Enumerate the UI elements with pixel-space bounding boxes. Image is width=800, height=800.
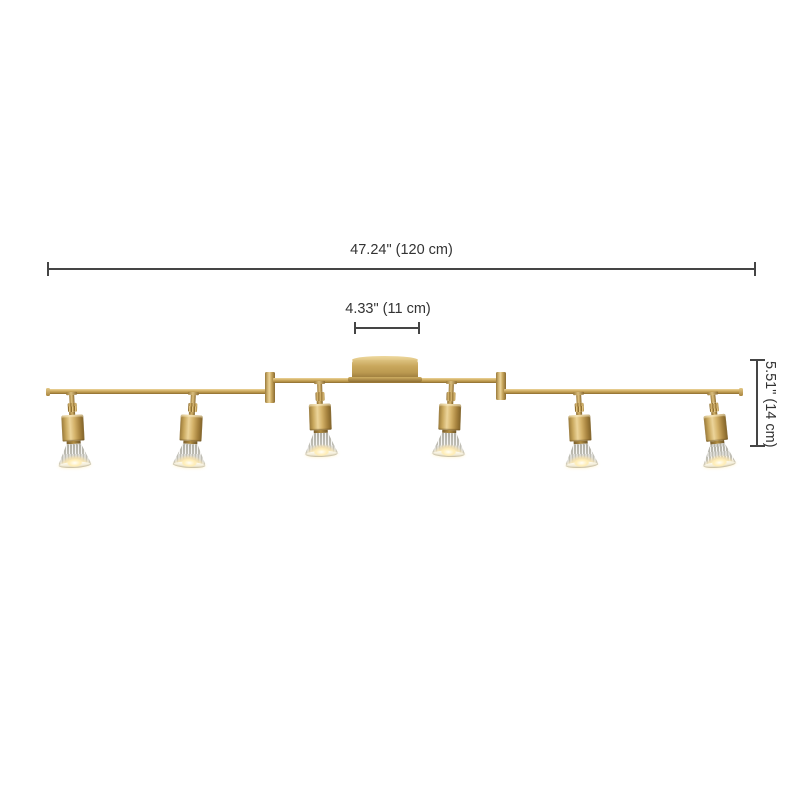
lamp-head-1	[53, 391, 93, 469]
lamp-glass-shade	[564, 443, 599, 469]
ceiling-canopy-flange	[348, 377, 422, 382]
overall-width-dimension-line	[48, 268, 755, 270]
fixture-height-dimension-label: 5.51" (14 cm)	[762, 361, 778, 448]
lamp-stem	[448, 384, 453, 392]
lamp-head-3	[301, 380, 340, 457]
lamp-cylinder-body	[568, 414, 591, 441]
lamp-stem	[190, 395, 195, 403]
canopy-width-dimension-label: 4.33" (11 cm)	[326, 301, 450, 317]
lamp-glass-shade	[172, 443, 207, 469]
fixture-height-dimension-line	[756, 360, 758, 446]
overall-width-left-tick	[47, 262, 49, 276]
lamp-stem	[317, 384, 322, 392]
overall-width-right-tick	[754, 262, 756, 276]
lamp-bulb-glow	[441, 448, 456, 457]
overall-width-dimension-label: 47.24" (120 cm)	[48, 242, 755, 258]
canopy-width-dimension-line	[355, 327, 419, 329]
lamp-swivel-joint	[446, 392, 455, 401]
lamp-cylinder-body	[179, 414, 202, 441]
track-connector-left	[265, 372, 275, 403]
product-dimension-diagram: 47.24" (120 cm) 4.33" (11 cm) 5.51" (14 …	[0, 0, 800, 800]
lamp-glass-shade	[701, 442, 737, 469]
lamp-head-2	[171, 391, 211, 469]
lamp-glass-shade	[57, 443, 92, 469]
lamp-glass-shade	[431, 432, 466, 457]
lamp-cylinder-body	[309, 404, 332, 431]
lamp-cylinder-body	[438, 404, 461, 431]
lamp-cylinder-body	[703, 414, 728, 442]
lamp-head-5	[560, 391, 600, 469]
canopy-width-left-tick	[354, 322, 356, 334]
ceiling-canopy-body	[352, 360, 418, 378]
lamp-glass-shade	[304, 432, 339, 457]
track-rail-right-endcap	[739, 388, 743, 396]
lamp-swivel-joint	[315, 392, 324, 401]
lamp-swivel-joint	[67, 403, 76, 412]
lamp-head-6	[694, 390, 738, 469]
lamp-swivel-joint	[574, 403, 583, 412]
canopy-width-right-tick	[418, 322, 420, 334]
lamp-cylinder-body	[61, 414, 84, 441]
track-connector-right	[496, 372, 506, 400]
lamp-swivel-joint	[187, 403, 196, 412]
track-rail-left-endcap	[46, 388, 50, 396]
lamp-head-4	[430, 380, 469, 457]
